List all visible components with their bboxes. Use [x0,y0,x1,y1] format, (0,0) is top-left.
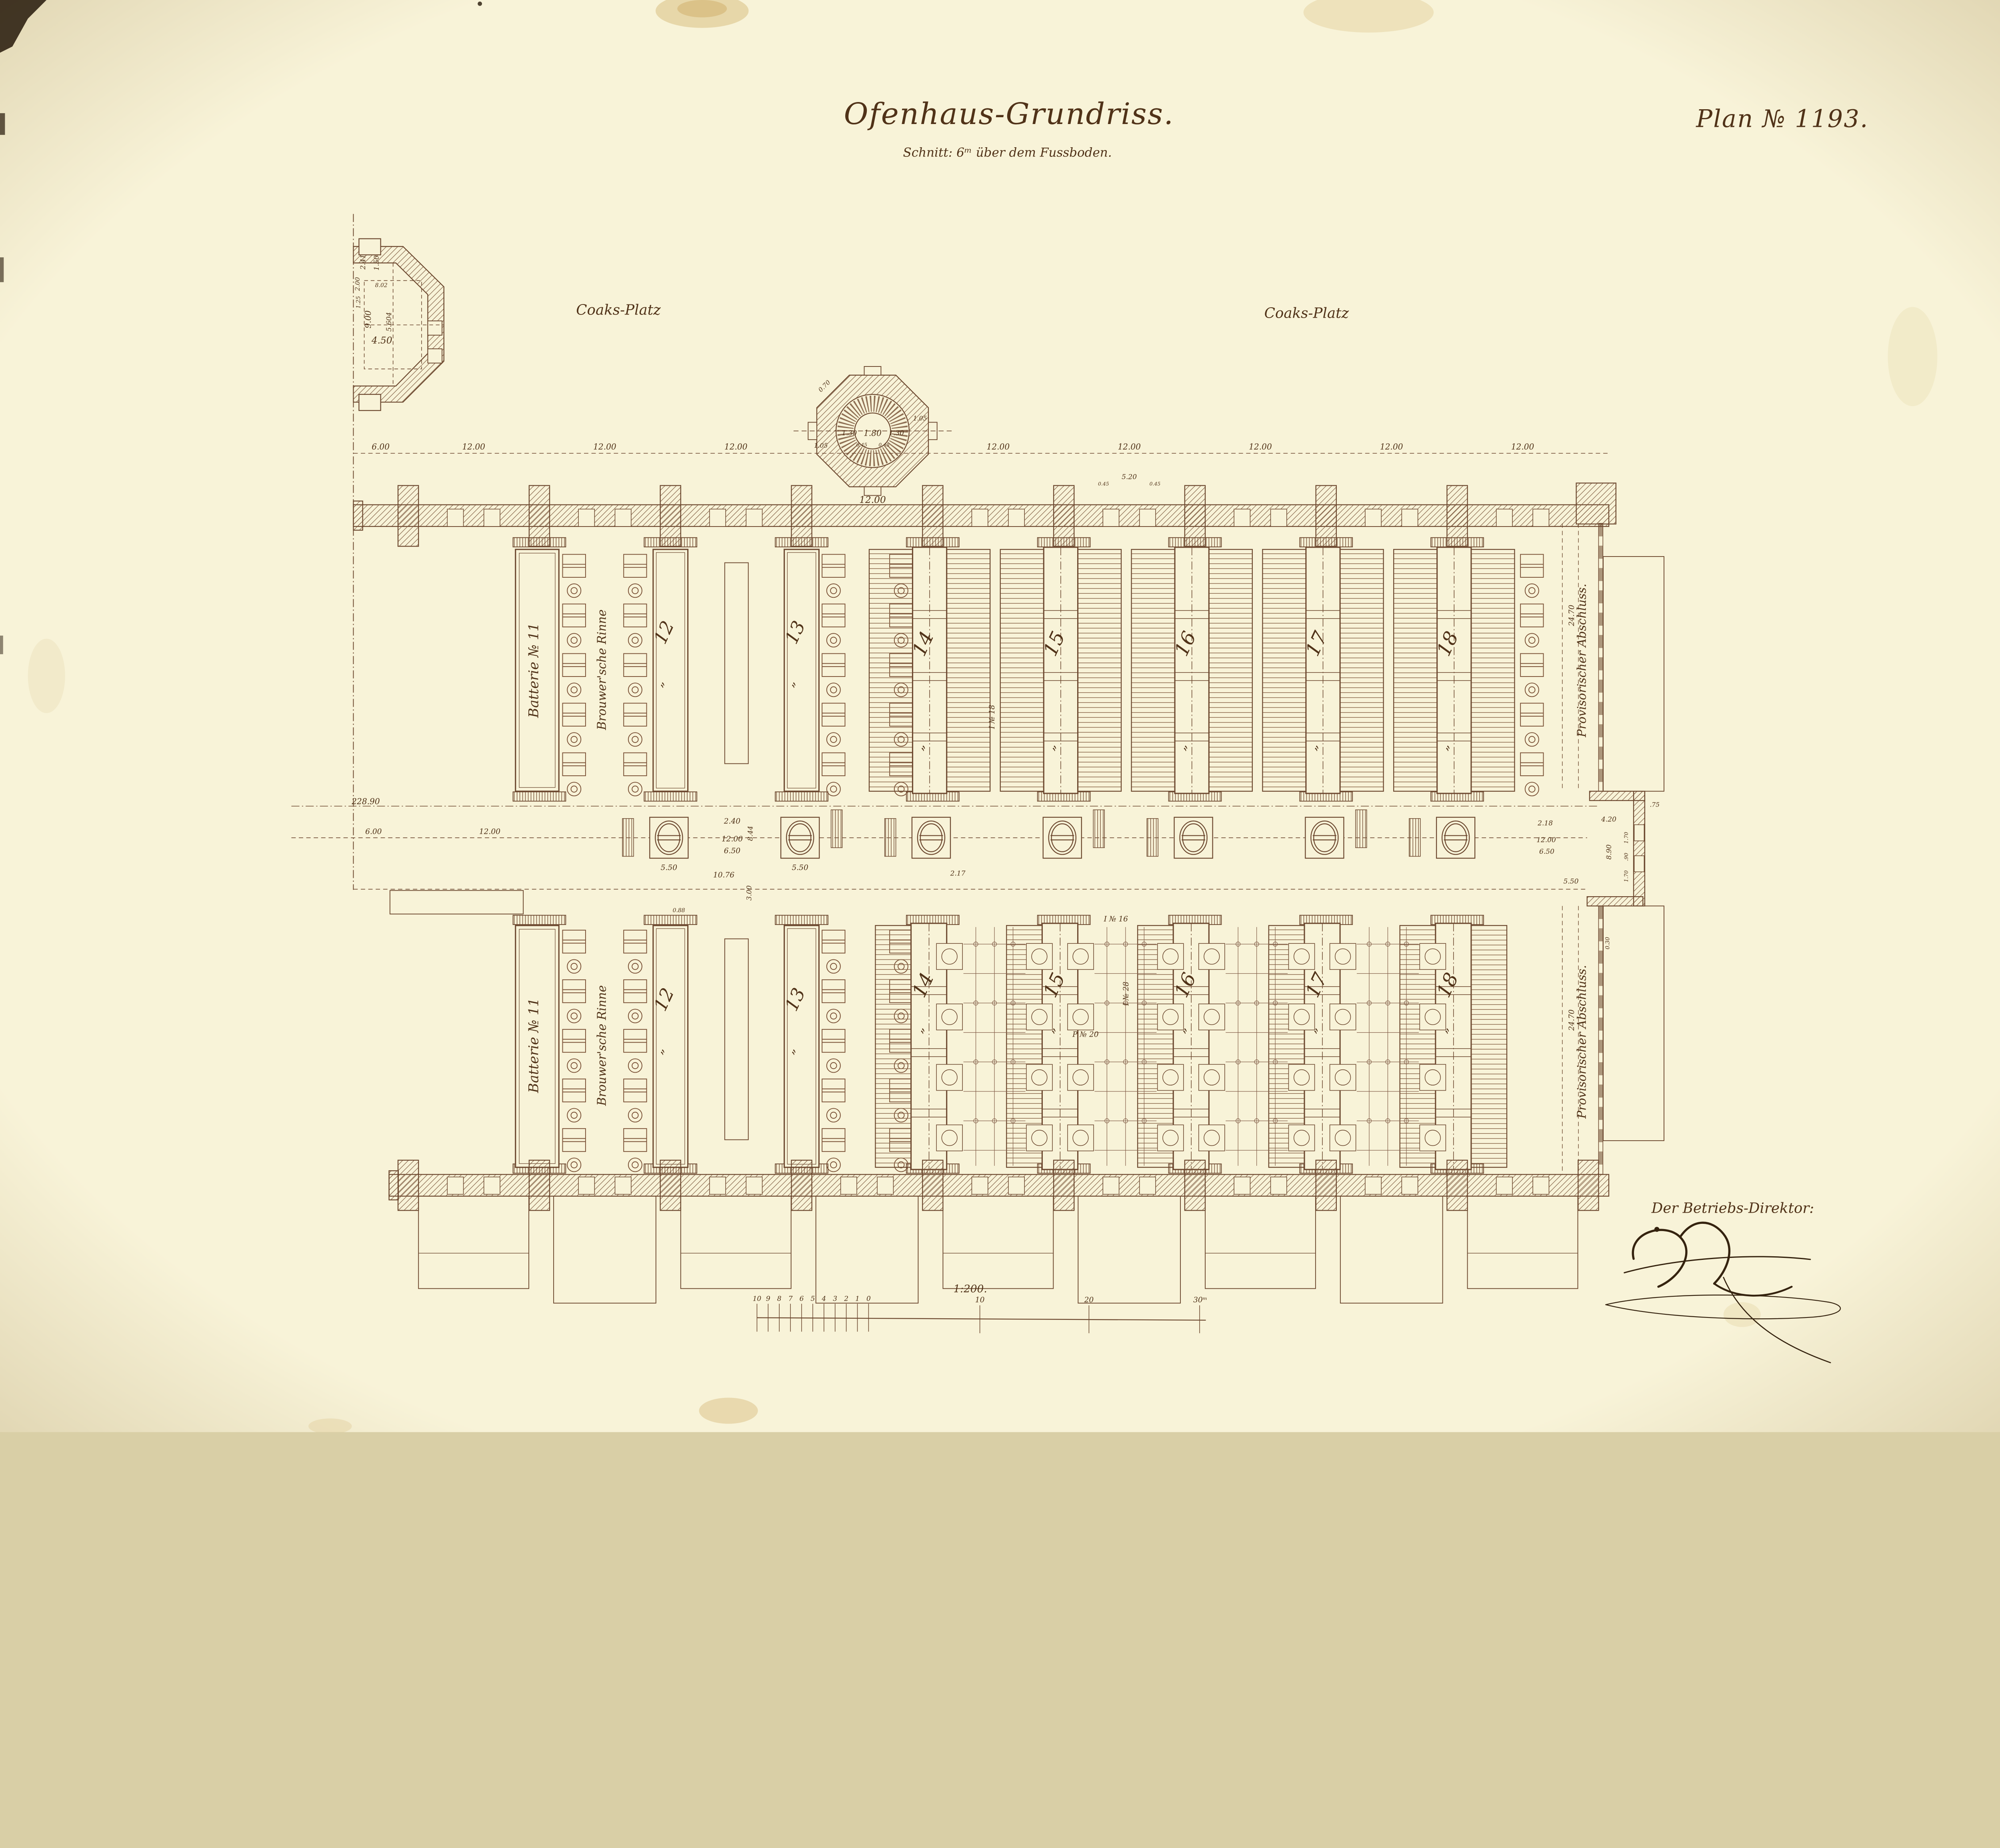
battery-11-upper-label: Batterie № 11 [526,623,542,719]
dim: 2.00 [354,277,361,291]
battery-13-upper-block [784,549,819,791]
beam-label: I № 28 [1122,981,1130,1006]
dim: 6.00 [372,442,390,452]
dim: 5.20 [1122,473,1137,481]
dim: 3.00 [745,885,753,901]
scale-tick: 6 [800,1295,804,1303]
top-right-corner-pier [1576,483,1616,524]
dim: 1.70 [1624,832,1630,843]
dim: 1.70 [1624,870,1630,882]
dim: 4.20 [1601,816,1616,824]
dim: 5.50 [792,864,808,872]
coaks-platz-right-label: Coaks-Platz [1264,305,1349,321]
dim: 6.00 [365,828,382,836]
dim: 1.30 [889,429,904,437]
dim: 2.17 [950,869,966,877]
dim: 12.00 [1118,442,1141,452]
dim: .90 [1624,853,1630,861]
dim: 6.50 [1539,848,1554,856]
scale-ratio: 1:200. [953,1283,987,1295]
scale-tick: 0 [866,1295,871,1303]
dim: 5.604 [385,312,393,332]
scale-tick-major: 20 [1084,1296,1094,1304]
dim: 12.00 [722,835,743,843]
platform-upper [725,563,748,764]
director-caption: Der Betriebs-Direktor: [1651,1200,1814,1217]
scale-tick: 7 [788,1295,793,1303]
dim: 12.00 [462,442,485,452]
page-title: Ofenhaus-Grundriss. [844,96,1174,131]
dim: 8.44 [747,826,755,841]
dim: 10.76 [713,871,734,879]
beam-label: P № 20 [1072,1030,1099,1039]
dim: 12.00 [1536,836,1556,844]
dim: 12.00 [593,442,616,452]
dim: 6.50 [724,847,741,855]
battery-13-lower-block [784,925,819,1167]
plan-number: Plan № 1193. [1696,105,1868,133]
dim: 8.02 [375,282,388,289]
coaks-platz-left-label: Coaks-Platz [576,302,661,318]
scale-tick: 1 [855,1295,860,1303]
scanned-plan-page: Ofenhaus-Grundriss. Schnitt: 6ᵐ über dem… [0,0,2000,1432]
abschluss-lower-label: Provisorischer Abschluss. [1575,965,1589,1119]
scale-tick: 8 [777,1295,782,1303]
plan-drawing: Ofenhaus-Grundriss. Schnitt: 6ᵐ über dem… [0,0,2000,1432]
dim: .75 [1650,801,1660,808]
dim: 5.50 [1563,878,1578,886]
dim: 12.00 [859,495,886,505]
dim: 4.50 [371,335,392,346]
beam-label: I № 18 [988,705,996,729]
scale-tick: 2 [844,1295,848,1303]
dim: 5.50 [661,864,678,872]
battery-12-lower-block [653,925,688,1167]
dim: 0.45 [856,442,868,448]
beam-label: I № 16 [1104,915,1128,923]
scale-tick: 4 [821,1295,826,1303]
dim: 0.45 [1098,481,1109,487]
scale-tick: 10 [753,1295,762,1303]
dim: 9.00 [363,310,373,328]
battery-12-upper-block [653,549,688,791]
dim: 12.00 [1511,442,1534,452]
dim: 1.50 [373,255,381,270]
dim: 2.40 [724,817,741,825]
dim: 12.00 [1380,442,1403,452]
dim: 2.18 [1537,819,1553,827]
abschluss-upper-label: Provisorischer Abschluss. [1575,584,1589,738]
scale-tick-major: 30ᵐ [1193,1296,1207,1304]
rinne-upper-label: Brouwer'sche Rinne [595,609,608,730]
scale-tick-major: 10 [975,1296,985,1304]
battery-11-lower-label: Batterie № 11 [526,998,542,1093]
dim: 8.90 [1605,844,1613,859]
scale-tick: 5 [811,1295,815,1303]
dim: 1.80 [864,428,882,438]
dim: 12.00 [724,442,748,452]
dim: 12.00 [987,442,1010,452]
rinne-lower-label: Brouwer'sche Rinne [595,985,608,1106]
scale-tick: 9 [766,1295,770,1303]
dim: 1.30 [842,429,857,437]
platform-lower [725,939,748,1140]
dim: 1.05 [814,442,828,449]
dim: 0.45 [878,442,890,448]
dim: 12.00 [1249,442,1272,452]
dim: 1.25 [356,296,362,308]
dim: 228.90 [351,797,380,806]
dim: 12.00 [479,828,500,836]
scale-tick: 3 [833,1295,837,1303]
page-subtitle: Schnitt: 6ᵐ über dem Fussboden. [903,145,1112,160]
dim: 0.30 [1605,937,1611,949]
dim: 2.41 [359,254,367,270]
dim: 0.45 [1150,481,1161,487]
dim: 0.88 [673,907,685,914]
dim: 1.05 [913,415,927,422]
